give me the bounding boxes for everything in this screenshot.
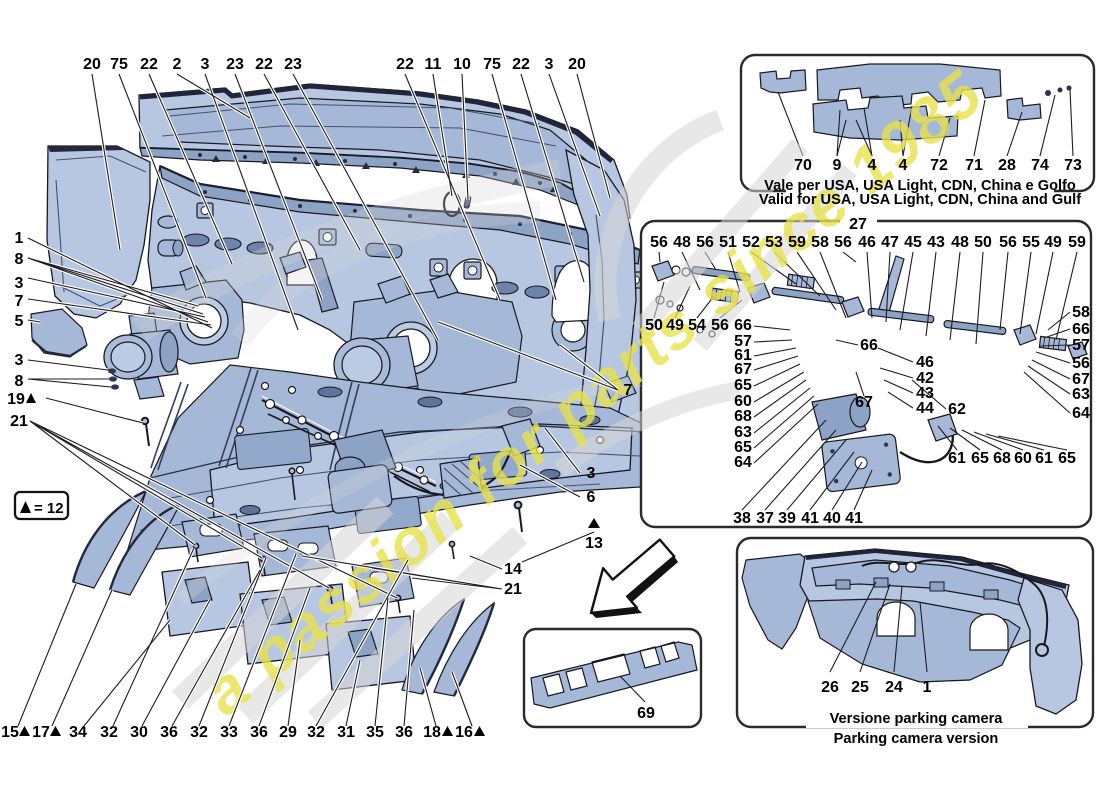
svg-text:8: 8 [15,373,24,390]
svg-text:55: 55 [1022,234,1040,251]
svg-text:= 12: = 12 [34,500,64,517]
svg-text:47: 47 [881,234,899,251]
svg-text:46: 46 [916,354,934,371]
svg-text:21: 21 [10,413,28,430]
svg-text:32: 32 [190,724,208,741]
svg-text:65: 65 [1058,450,1076,467]
svg-text:74: 74 [1031,157,1049,174]
svg-text:14: 14 [504,561,522,578]
svg-text:1: 1 [15,230,24,247]
svg-text:75: 75 [483,56,501,73]
svg-text:45: 45 [904,234,922,251]
svg-text:34: 34 [69,724,87,741]
svg-text:28: 28 [998,157,1016,174]
svg-text:63: 63 [1072,386,1090,403]
svg-text:51: 51 [719,234,737,251]
svg-text:62: 62 [948,401,966,418]
svg-text:7: 7 [15,293,24,310]
svg-text:41: 41 [801,510,819,527]
svg-text:22: 22 [140,56,158,73]
svg-text:2: 2 [173,56,182,73]
svg-text:68: 68 [993,450,1011,467]
svg-text:1: 1 [923,679,932,696]
svg-text:66: 66 [734,317,752,334]
svg-text:23: 23 [226,56,244,73]
svg-text:69: 69 [637,705,655,722]
svg-text:52: 52 [742,234,760,251]
svg-text:56: 56 [650,234,668,251]
svg-text:36: 36 [250,724,268,741]
svg-text:31: 31 [337,724,355,741]
svg-text:13: 13 [585,535,603,552]
svg-text:66: 66 [860,337,878,354]
svg-text:18: 18 [423,724,441,741]
svg-text:49: 49 [666,317,684,334]
svg-text:53: 53 [765,234,783,251]
svg-text:38: 38 [733,510,751,527]
svg-text:57: 57 [1072,337,1090,354]
svg-text:67: 67 [855,394,873,411]
svg-text:3: 3 [201,56,210,73]
svg-text:22: 22 [512,56,530,73]
svg-text:3: 3 [15,352,24,369]
svg-text:39: 39 [778,510,796,527]
svg-text:70: 70 [794,157,812,174]
svg-text:3: 3 [545,56,554,73]
svg-text:56: 56 [711,317,729,334]
svg-text:75: 75 [110,56,128,73]
svg-text:27: 27 [849,216,867,233]
svg-text:20: 20 [83,56,101,73]
svg-text:64: 64 [1072,405,1090,422]
svg-text:10: 10 [453,56,471,73]
svg-text:61: 61 [948,450,966,467]
svg-text:72: 72 [930,157,948,174]
svg-text:16: 16 [455,724,473,741]
svg-text:43: 43 [927,234,945,251]
svg-text:20: 20 [568,56,586,73]
svg-text:50: 50 [974,234,992,251]
svg-text:56: 56 [1072,355,1090,372]
svg-text:15: 15 [1,724,19,741]
svg-text:32: 32 [307,724,325,741]
svg-text:25: 25 [851,679,869,696]
svg-text:64: 64 [734,454,752,471]
svg-text:58: 58 [811,234,829,251]
svg-text:59: 59 [1068,234,1086,251]
svg-text:36: 36 [160,724,178,741]
svg-text:4: 4 [868,157,877,174]
svg-text:8: 8 [15,251,24,268]
svg-text:49: 49 [1044,234,1062,251]
svg-text:26: 26 [821,679,839,696]
svg-text:36: 36 [395,724,413,741]
svg-text:5: 5 [15,313,24,330]
svg-text:19: 19 [7,391,25,408]
svg-text:56: 56 [696,234,714,251]
svg-text:65: 65 [971,450,989,467]
svg-text:44: 44 [916,400,934,417]
svg-text:35: 35 [366,724,384,741]
svg-text:6: 6 [587,489,596,506]
svg-text:73: 73 [1064,157,1082,174]
svg-text:56: 56 [834,234,852,251]
svg-text:40: 40 [823,510,841,527]
svg-text:4: 4 [899,157,908,174]
svg-text:32: 32 [100,724,118,741]
svg-text:71: 71 [965,157,983,174]
svg-text:33: 33 [220,724,238,741]
svg-text:56: 56 [999,234,1017,251]
svg-text:22: 22 [396,56,414,73]
svg-text:7: 7 [624,382,633,399]
svg-text:48: 48 [951,234,969,251]
svg-text:3: 3 [15,275,24,292]
svg-text:Versione parking camera: Versione parking camera [830,711,1004,727]
svg-text:22: 22 [255,56,273,73]
svg-text:66: 66 [1072,321,1090,338]
svg-text:67: 67 [734,361,752,378]
svg-text:37: 37 [756,510,774,527]
svg-text:24: 24 [885,679,903,696]
svg-text:61: 61 [1035,450,1053,467]
svg-text:58: 58 [1072,304,1090,321]
svg-text:9: 9 [833,157,842,174]
svg-text:3: 3 [587,465,596,482]
svg-text:50: 50 [645,317,663,334]
svg-text:65: 65 [734,377,752,394]
svg-text:Parking camera version: Parking camera version [834,731,999,747]
svg-text:48: 48 [673,234,691,251]
svg-text:46: 46 [858,234,876,251]
svg-text:17: 17 [32,724,50,741]
svg-text:21: 21 [504,581,522,598]
svg-text:30: 30 [130,724,148,741]
svg-text:Valid for USA, USA Light, CDN,: Valid for USA, USA Light, CDN, China and… [759,192,1081,208]
svg-text:41: 41 [845,510,863,527]
svg-text:54: 54 [688,317,706,334]
svg-text:29: 29 [279,724,297,741]
svg-text:68: 68 [734,408,752,425]
svg-text:59: 59 [788,234,806,251]
svg-text:23: 23 [284,56,302,73]
svg-text:60: 60 [1014,450,1032,467]
svg-text:11: 11 [425,56,442,73]
